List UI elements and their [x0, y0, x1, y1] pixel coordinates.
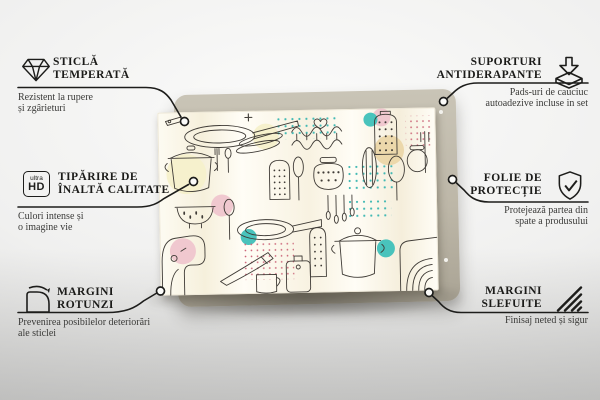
- marketing-scene: STICLĂ TEMPERATĂ Rezistent la rupere și …: [0, 0, 600, 400]
- diamond-icon: [21, 57, 51, 83]
- glass-board-product: [157, 107, 438, 295]
- callout-title-protective-film: FOLIE DE PROTECȚIE: [470, 172, 542, 198]
- title-line: MARGINI: [482, 285, 542, 298]
- callout-subtitle-polished-edges: Finisaj neted și sigur: [505, 315, 588, 326]
- title-line: ROTUNZI: [57, 299, 114, 312]
- title-line: ÎNALTĂ CALITATE: [58, 184, 170, 197]
- anti-slip-pad-icon: [551, 56, 587, 89]
- title-line: TIPĂRIRE DE: [58, 171, 170, 184]
- callout-title-hd-print: TIPĂRIRE DE ÎNALTĂ CALITATE: [58, 171, 170, 197]
- title-line: ANTIDERAPANTE: [437, 69, 542, 82]
- title-line: MARGINI: [57, 286, 114, 299]
- callout-subtitle-anti-slip: Pads-uri de cauciuc autoadezive incluse …: [486, 87, 588, 109]
- title-line: FOLIE DE: [470, 172, 542, 185]
- ultra-hd-icon-big-text: HD: [28, 182, 45, 193]
- subtitle-line: Rezistent la rupere: [18, 92, 93, 103]
- subtitle-line: Finisaj neted și sigur: [505, 315, 588, 326]
- subtitle-line: Pads-uri de cauciuc: [486, 87, 588, 98]
- ultra-hd-icon: ultra HD: [23, 171, 50, 197]
- title-line: SUPORTURI: [437, 56, 542, 69]
- subtitle-line: Protejează partea din: [504, 205, 588, 216]
- title-line: STICLĂ: [53, 56, 130, 69]
- callout-title-anti-slip: SUPORTURI ANTIDERAPANTE: [437, 56, 542, 82]
- kitchen-doodle-pattern: [157, 107, 438, 295]
- callout-subtitle-rounded-edges: Prevenirea posibilelor deteriorări ale s…: [18, 317, 150, 339]
- callout-subtitle-tempered-glass: Rezistent la rupere și zgârieturi: [18, 92, 93, 114]
- subtitle-line: Prevenirea posibilelor deteriorări: [18, 317, 150, 328]
- title-line: TEMPERATĂ: [53, 69, 130, 82]
- callout-title-tempered-glass: STICLĂ TEMPERATĂ: [53, 56, 130, 82]
- subtitle-line: ale sticlei: [18, 328, 150, 339]
- shield-check-icon: [555, 170, 585, 201]
- callout-subtitle-hd-print: Culori intense și o imagine vie: [18, 211, 84, 233]
- callout-title-rounded-edges: MARGINI ROTUNZI: [57, 286, 114, 312]
- subtitle-line: spate a produsului: [504, 216, 588, 227]
- title-line: SLEFUITE: [482, 298, 542, 311]
- rounded-corner-icon: [22, 285, 52, 315]
- callout-subtitle-protective-film: Protejează partea din spate a produsului: [504, 205, 588, 227]
- subtitle-line: o imagine vie: [18, 222, 84, 233]
- callout-title-polished-edges: MARGINI SLEFUITE: [482, 285, 542, 311]
- subtitle-line: Culori intense și: [18, 211, 84, 222]
- polished-edge-icon: [556, 285, 586, 312]
- subtitle-line: autoadezive incluse in set: [486, 98, 588, 109]
- title-line: PROTECȚIE: [470, 185, 542, 198]
- subtitle-line: și zgârieturi: [18, 103, 93, 114]
